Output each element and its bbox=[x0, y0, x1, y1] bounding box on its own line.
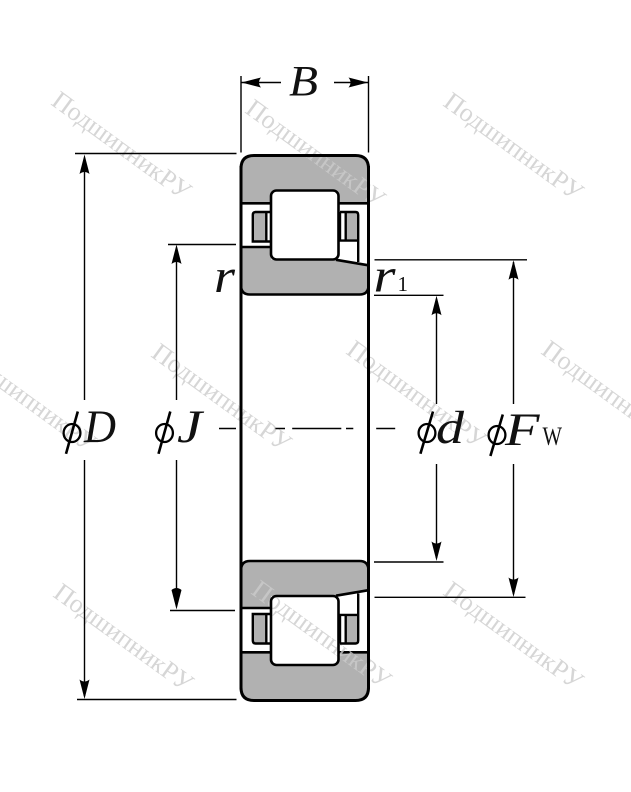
svg-text:r: r bbox=[214, 250, 235, 303]
svg-text:D: D bbox=[83, 401, 116, 453]
svg-text:B: B bbox=[289, 59, 318, 106]
svg-text:J: J bbox=[177, 401, 205, 453]
svg-text:d: d bbox=[436, 402, 465, 454]
svg-text:F: F bbox=[504, 404, 541, 456]
svg-text:r: r bbox=[374, 250, 396, 303]
svg-text:W: W bbox=[543, 422, 563, 451]
svg-text:1: 1 bbox=[398, 272, 409, 296]
